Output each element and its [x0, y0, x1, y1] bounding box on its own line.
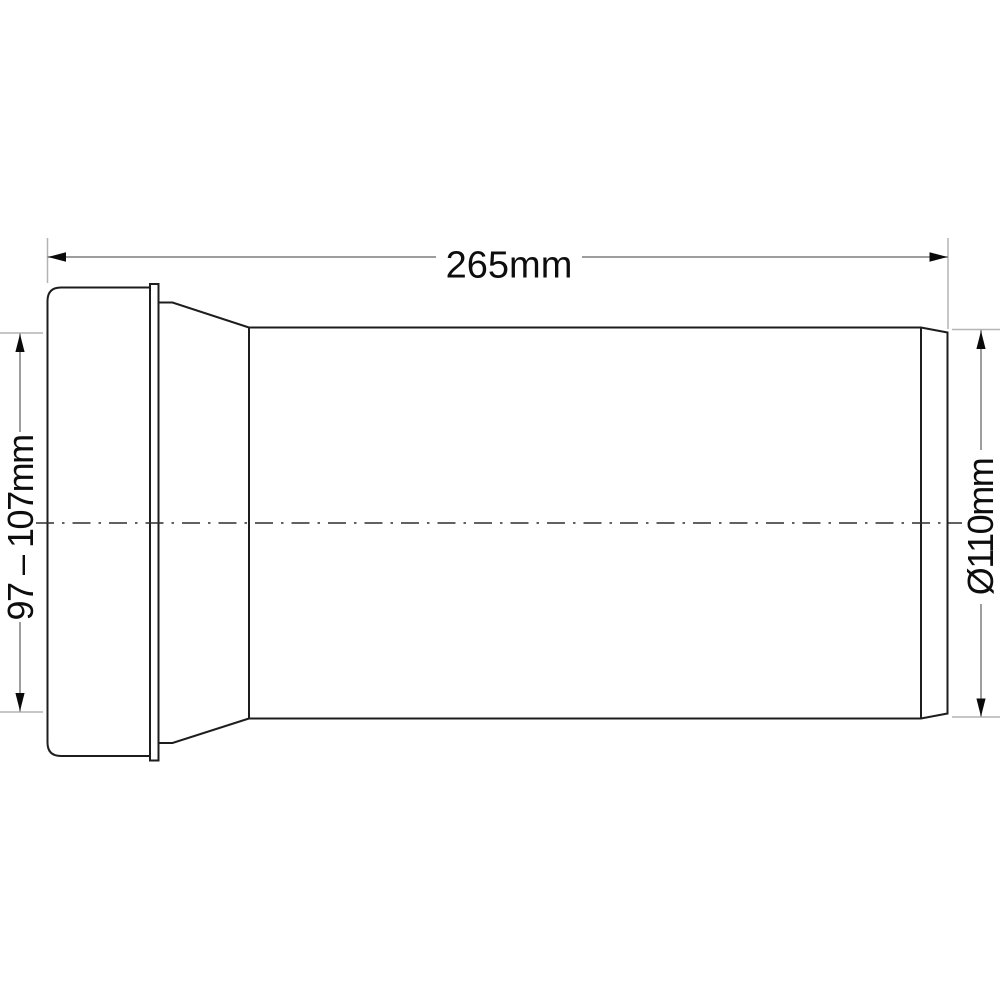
part-socket	[48, 288, 151, 757]
drawing-canvas: 265mm 97 – 107mm Ø110mm	[0, 0, 1000, 1000]
length-dimension-label: 265mm	[446, 245, 573, 287]
socket-range-dimension-label: 97 – 107mm	[0, 435, 41, 620]
technical-drawing: 265mm 97 – 107mm Ø110mm	[0, 0, 1000, 1000]
diameter-dimension-label: Ø110mm	[960, 459, 1000, 595]
